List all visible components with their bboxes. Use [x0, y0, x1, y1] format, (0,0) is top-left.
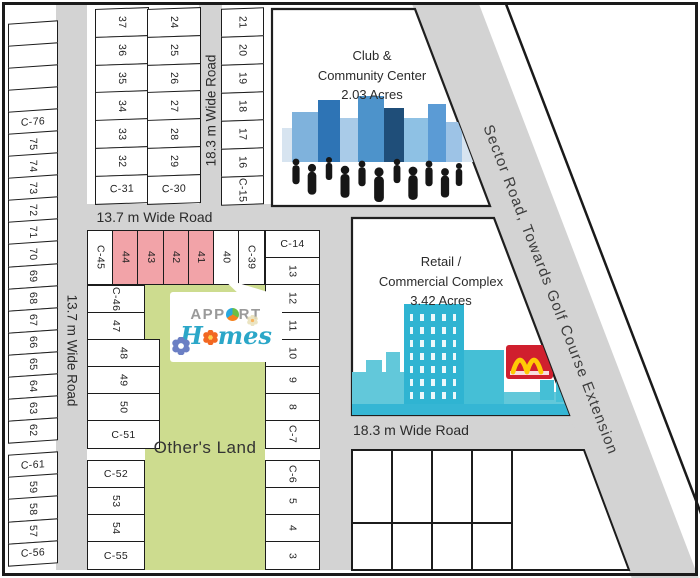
plot-column-right: C-141312111098C-7C-6543	[265, 230, 320, 570]
road-label-mid-horizontal: 13.7 m Wide Road	[92, 206, 217, 228]
plot-cell: 13	[265, 257, 320, 286]
plot-cell	[265, 449, 320, 460]
plot-cell: 41	[188, 230, 215, 285]
plot-cell: C-31	[95, 174, 149, 205]
plot-cell: 43	[137, 230, 164, 285]
plot-block-37-31: 373635343332C-31	[95, 7, 149, 205]
plot-cell: 50	[87, 393, 160, 422]
blue-flower-icon	[172, 337, 190, 355]
plot-cell: 35	[95, 63, 149, 94]
plot-cell: 44	[112, 230, 139, 285]
vacant-plots-grid	[352, 450, 629, 570]
plot-cell: 4	[265, 514, 320, 543]
plot-cell: C-55	[87, 541, 145, 570]
plot-cell: C-14	[265, 230, 320, 259]
retail-caption: Retail / Commercial Complex 3.42 Acres	[360, 252, 522, 311]
pale-flower-icon	[247, 315, 258, 326]
plot-cell: 49	[87, 366, 160, 395]
plot-cell: C-6	[265, 460, 320, 489]
road-label-top-vertical: 18.3 m Wide Road	[187, 25, 235, 195]
club-art	[282, 96, 482, 202]
road-label-left-vertical: 13.7 m Wide Road	[48, 230, 96, 470]
plot-cell: 34	[95, 90, 149, 121]
plot-cell: 9	[265, 366, 320, 395]
mcdonalds-sign	[506, 345, 553, 379]
plot-cell: 54	[87, 514, 145, 543]
plot-cell: 33	[95, 118, 149, 149]
plot-cell: 36	[95, 35, 149, 66]
site-plan-map: C-767574737271706968676665646362C-615958…	[0, 0, 700, 578]
orange-flower-icon	[203, 330, 218, 345]
plot-cell: 40	[213, 230, 240, 285]
apport-homes-logo: APPRT H mes	[170, 292, 282, 362]
swirl-o-icon	[226, 308, 239, 321]
plot-cell: 3	[265, 541, 320, 570]
logo-homes-text: H mes	[180, 324, 272, 348]
retail-caption-line2: Commercial Complex	[360, 272, 522, 292]
plot-cell: C-7	[265, 420, 320, 449]
club-caption: Club & Community Center 2.03 Acres	[292, 46, 452, 105]
road-right-vertical	[320, 204, 353, 570]
plot-cell: C-56	[8, 540, 58, 567]
road-label-bottom-horizontal: 18.3 m Wide Road	[353, 420, 483, 440]
plot-cell: 5	[265, 487, 320, 516]
club-caption-line3: 2.03 Acres	[292, 85, 452, 105]
club-caption-line2: Community Center	[292, 66, 452, 86]
logo-homes-rest: mes	[218, 321, 272, 350]
plot-cell: 42	[163, 230, 190, 285]
retail-caption-line3: 3.42 Acres	[360, 291, 522, 311]
club-block	[272, 9, 490, 206]
plot-row-45-39: C-454443424140C-39	[87, 230, 265, 285]
retail-art	[352, 304, 574, 415]
plot-cell: 53	[87, 487, 145, 516]
plot-cell: C-39	[238, 230, 265, 285]
plot-cell: 37	[95, 7, 149, 38]
club-caption-line1: Club &	[292, 46, 452, 66]
others-land-label: Other's Land	[145, 438, 265, 458]
people-silhouettes	[292, 157, 462, 202]
plot-cell: 8	[265, 393, 320, 422]
plot-cell: 32	[95, 146, 149, 177]
plot-cell: 48	[87, 339, 160, 368]
retail-caption-line1: Retail /	[360, 252, 522, 272]
